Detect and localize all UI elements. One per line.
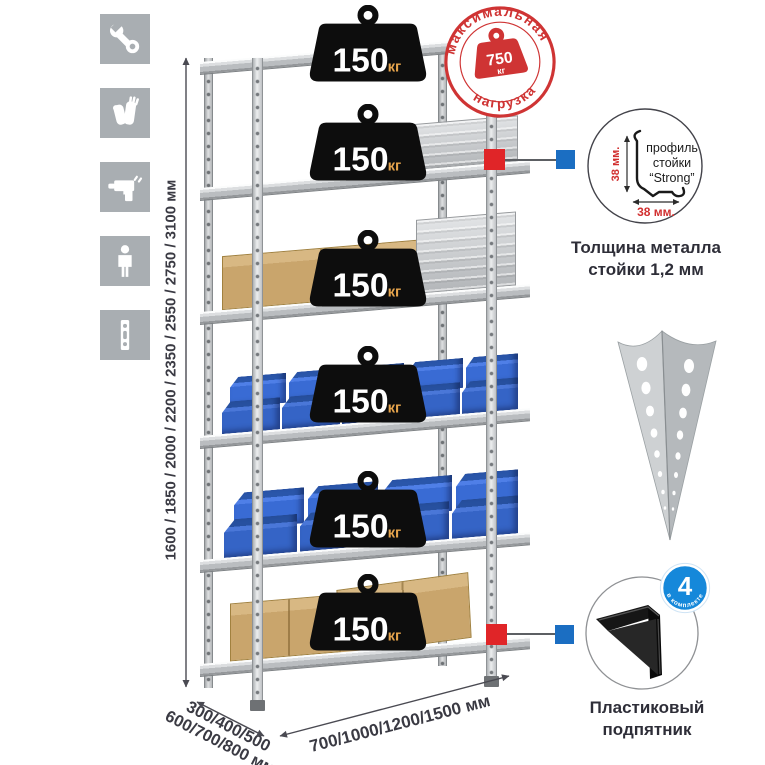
wrench-icon: [105, 19, 145, 59]
load-unit: кг: [388, 524, 402, 541]
assembly-tools-tile: [100, 14, 150, 64]
plastic-bin: [222, 397, 280, 434]
load-unit: кг: [388, 627, 402, 644]
post-profile-icon: [105, 315, 145, 355]
load-unit: кг: [388, 157, 402, 174]
profile-label-1: профиль: [646, 141, 698, 155]
max-load-stamp: максимальная нагрузка 750 кг: [441, 3, 559, 121]
load-unit: кг: [388, 283, 402, 300]
badge-count: 4: [678, 571, 693, 601]
plastic-bin: [452, 495, 518, 539]
upright-post-tile: [100, 310, 150, 360]
callout-marker-red-top: [484, 149, 505, 170]
foot-caption-line1: Пластиковый: [560, 697, 734, 719]
rack-post-front-left: [252, 58, 263, 702]
rack-foot: [484, 676, 499, 687]
shelf-load-weight: 150 кг: [298, 574, 438, 660]
callout-line-top: [505, 159, 556, 161]
profile-label-2: стойки: [653, 156, 691, 170]
load-value: 150: [333, 508, 389, 545]
load-value: 150: [333, 42, 389, 79]
profile-label-3: “Strong”: [649, 171, 694, 185]
load-value: 150: [333, 267, 389, 304]
profile-dim-horizontal: 38 мм.: [637, 205, 675, 219]
profile-caption-line2: стойки 1,2 мм: [557, 259, 735, 281]
kit-quantity-badge: 4 в комплекте: [659, 562, 711, 614]
height-dimension-label: 1600 / 1850 / 2000 / 2200 / 2350 / 2550 …: [163, 180, 180, 561]
gloves-icon: [105, 93, 145, 133]
shelving-infographic: 1600 / 1850 / 2000 / 2200 / 2350 / 2550 …: [0, 0, 765, 765]
shelf-load-weight: 150 кг: [298, 104, 438, 190]
load-value: 150: [333, 141, 389, 178]
person-icon: [105, 241, 145, 281]
profile-caption: Толщина металла стойки 1,2 мм: [557, 237, 735, 281]
drill-icon: [105, 167, 145, 207]
stamp-load-unit: кг: [497, 65, 507, 76]
rack-foot: [250, 700, 265, 711]
rack-post-front-right: [486, 38, 497, 678]
shelf-load-weight: 150 кг: [298, 471, 438, 557]
shelf-load-weight: 150 кг: [298, 5, 438, 91]
load-unit: кг: [388, 399, 402, 416]
load-unit: кг: [388, 58, 402, 75]
callout-marker-blue-top: [556, 150, 575, 169]
profile-caption-line1: Толщина металла: [557, 237, 735, 259]
angle-post-image: [592, 306, 744, 551]
load-value: 150: [333, 383, 389, 420]
profile-dim-vertical: 38 мм.: [610, 147, 622, 182]
foot-caption: Пластиковый подпятник: [560, 697, 734, 741]
profile-detail-circle: 38 мм. 38 мм. профиль стойки “Strong”: [585, 106, 705, 226]
callout-marker-blue-bottom: [555, 625, 574, 644]
shelf-load-weight: 150 кг: [298, 230, 438, 316]
gloves-tile: [100, 88, 150, 138]
callout-marker-red-bottom: [486, 624, 507, 645]
callout-line-bottom: [507, 633, 555, 635]
person-tile: [100, 236, 150, 286]
load-value: 150: [333, 611, 389, 648]
foot-caption-line2: подпятник: [560, 719, 734, 741]
shelf-load-weight: 150 кг: [298, 346, 438, 432]
drill-tile: [100, 162, 150, 212]
